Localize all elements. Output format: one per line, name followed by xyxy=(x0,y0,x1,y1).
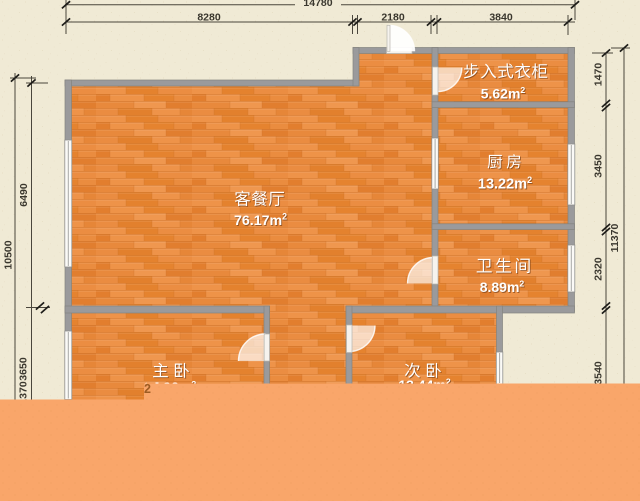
svg-text:5.62m2: 5.62m2 xyxy=(481,85,526,101)
svg-text:76.17m2: 76.17m2 xyxy=(234,212,287,229)
svg-text:10500: 10500 xyxy=(3,240,15,269)
svg-text:3650: 3650 xyxy=(18,357,30,381)
svg-text:11370: 11370 xyxy=(609,224,621,253)
svg-text:3840: 3840 xyxy=(489,12,513,24)
svg-text:6490: 6490 xyxy=(18,183,30,207)
svg-text:3450: 3450 xyxy=(593,154,605,178)
svg-text:3540: 3540 xyxy=(593,361,605,385)
svg-text:13.22m2: 13.22m2 xyxy=(478,175,532,193)
svg-text:8.89m2: 8.89m2 xyxy=(480,279,525,295)
svg-text:1470: 1470 xyxy=(593,63,605,87)
svg-text:2320: 2320 xyxy=(593,257,605,281)
svg-text:2180: 2180 xyxy=(381,12,405,24)
svg-text:14780: 14780 xyxy=(303,0,332,9)
svg-text:2: 2 xyxy=(144,382,151,396)
svg-text:8280: 8280 xyxy=(197,12,221,24)
